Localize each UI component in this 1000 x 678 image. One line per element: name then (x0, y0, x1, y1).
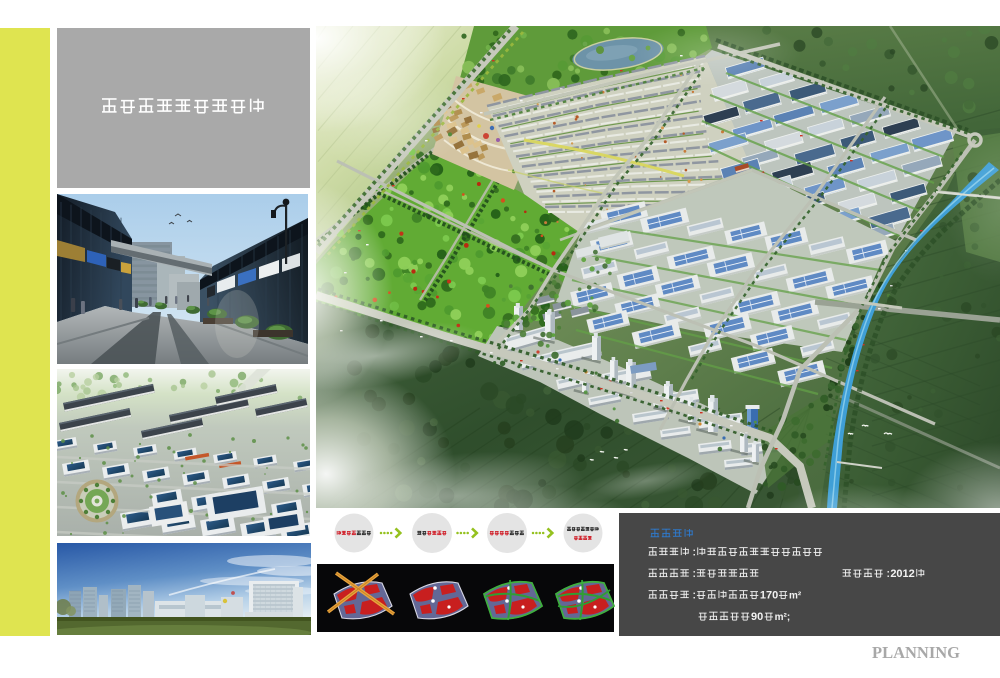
svg-text:m²;: m²; (775, 612, 791, 623)
svg-text:90: 90 (751, 611, 763, 623)
svg-text:170: 170 (760, 590, 778, 602)
svg-text:m²: m² (789, 591, 802, 602)
svg-text:2012: 2012 (890, 568, 914, 580)
